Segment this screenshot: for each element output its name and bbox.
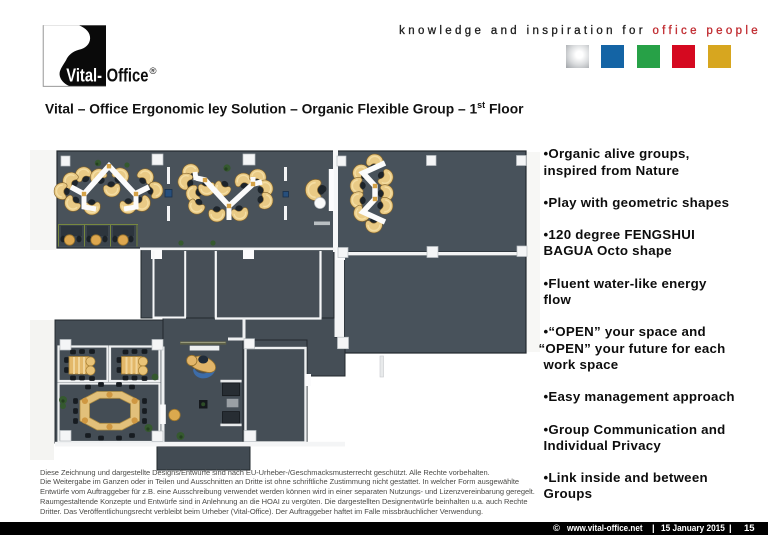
svg-text:®: ®	[150, 66, 157, 77]
svg-text:Office: Office	[107, 66, 149, 86]
svg-text:Vital-: Vital-	[66, 66, 102, 86]
